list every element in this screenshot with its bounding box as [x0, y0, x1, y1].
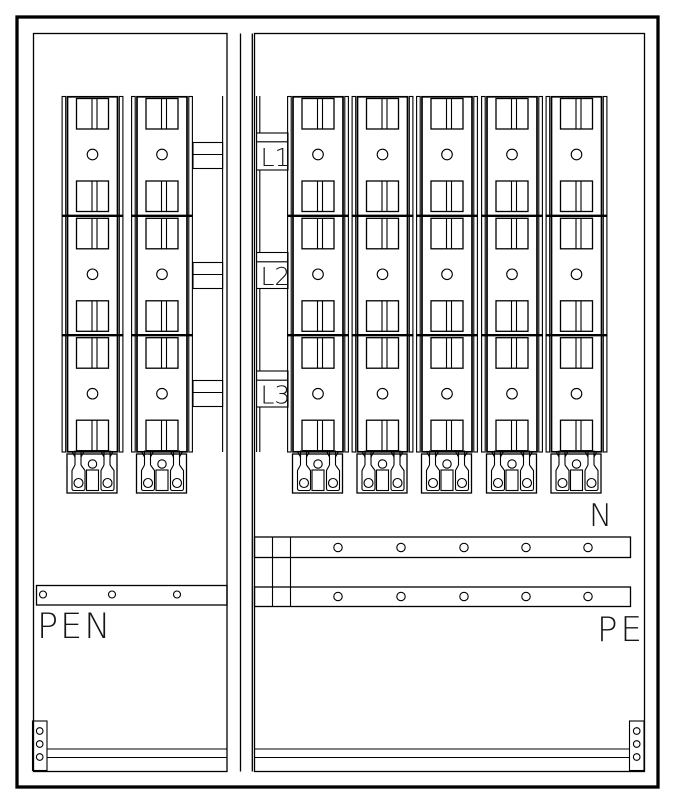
phase-l2-label: L2 [261, 262, 291, 291]
neutral-bus-label: N [589, 498, 612, 534]
phase-l1-label: L1 [261, 143, 291, 172]
phase-l3-label: L3 [261, 381, 291, 410]
pen-bus-label: PEN [37, 607, 112, 647]
pe-bus-label: PE [597, 610, 645, 650]
cabinet-drawing: PEN L1 L2 L3 N PE [0, 0, 677, 812]
